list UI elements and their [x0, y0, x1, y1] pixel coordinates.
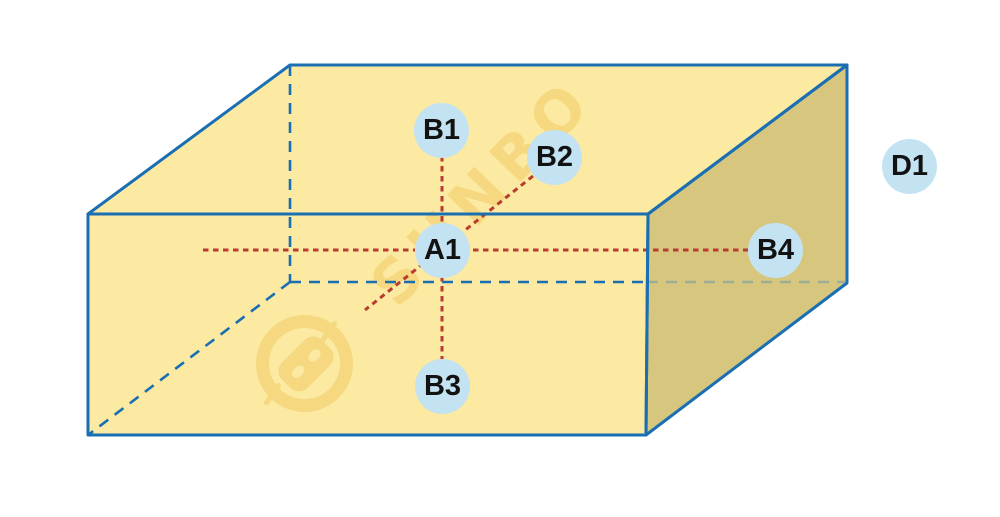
point-marker-b3: B3 [415, 359, 470, 414]
point-label-b4: B4 [757, 236, 794, 265]
box-top-face-edges [88, 65, 847, 214]
point-marker-d1: D1 [882, 139, 937, 194]
hidden-edge-bottom-left-diagonal [88, 282, 290, 435]
box-edges-layer [0, 0, 1000, 517]
point-marker-b2: B2 [527, 130, 582, 185]
point-label-a1: A1 [424, 236, 461, 265]
diagram-canvas: SUNBO B1 B2 A1 B4 B3 [0, 0, 1000, 517]
box-front-face-edges [88, 214, 648, 435]
point-marker-b4: B4 [748, 223, 803, 278]
point-label-d1: D1 [891, 152, 928, 181]
point-label-b2: B2 [536, 143, 573, 172]
point-label-b1: B1 [423, 116, 460, 145]
point-marker-b1: B1 [414, 103, 469, 158]
point-label-b3: B3 [424, 372, 461, 401]
point-marker-a1: A1 [415, 223, 470, 278]
